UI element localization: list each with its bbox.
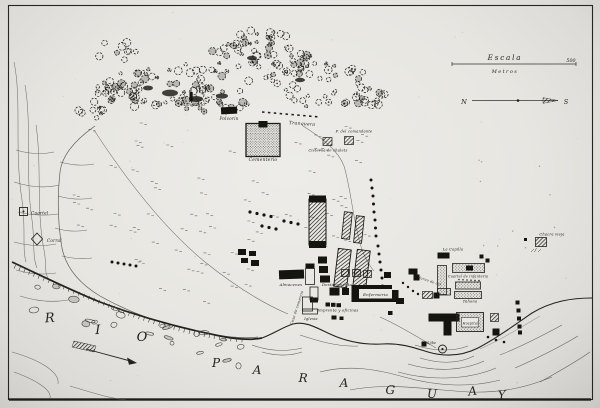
label-corral: Corral [47,238,62,243]
cistern-squares [323,137,354,146]
compass-north-label: N [460,98,467,106]
label-hospital: Hospital [462,322,479,326]
field-edge-line [58,126,258,338]
label-iglesia: Iglesia [303,317,318,321]
compass-center-dot [517,99,520,102]
river-texture [12,62,126,400]
river-letter: U [427,387,438,401]
label-aljibe: Aljibe [425,341,436,345]
hand-drawn-map: Escala 500 Metros N S [0,0,600,408]
label-enfermeria: Enfermeria [362,292,388,297]
forest-scrub [75,27,388,120]
river-letter: O [137,330,148,345]
label-la-capilla: La Capilla [442,248,463,252]
scale-bar: Escala 500 Metros [452,53,576,75]
river-letter: G [385,383,396,398]
label-polvorin: Polvorin [218,116,238,121]
label-mangrullo: Mangrullo [180,102,205,107]
compass-south-label: S [564,98,569,106]
label-tranquera: Tranquera [289,120,316,128]
shore-hatching [14,265,242,343]
tranquera-fence [262,112,320,117]
polvorin-building [221,107,237,115]
label-cuartel: Cuartel [31,211,49,216]
label-imprenta: Imprenta y oficinas [316,308,358,313]
map-page: Escala 500 Metros N S [0,0,600,408]
scale-end-value: 500 [566,58,575,64]
river-letter: I [94,323,102,338]
river-letter: R [297,371,308,385]
current-arrow [72,341,137,365]
label-chalet-top: F. del comandante [335,130,373,134]
label-cementerio: Cementerio [249,157,278,163]
scale-unit: Metros [491,69,518,75]
river-letter: A [467,384,478,399]
river-letter: A [339,376,349,390]
compass: N S [460,98,569,106]
label-chacra: Chacra vieja [539,233,564,237]
label-destacamento: Destacamento [321,282,352,287]
barracks-long-building [309,196,326,249]
river-letter: R [43,311,55,327]
river-letter: P [211,356,221,370]
label-chalet-bottom: Cisterna de chalets [308,149,347,153]
label-tahona: Tahona [463,300,477,304]
cemetery [246,121,280,157]
cemetery-gate [259,121,268,128]
chacra-feature [524,238,547,253]
label-almacenes: Almacenes [279,282,303,287]
well-icon [439,345,447,353]
label-cuartel-inf: Cuartel de infanteria [448,275,488,279]
scale-title: Escala [487,53,523,62]
compass-south-arrow [543,98,558,104]
river-letter: A [252,363,262,377]
